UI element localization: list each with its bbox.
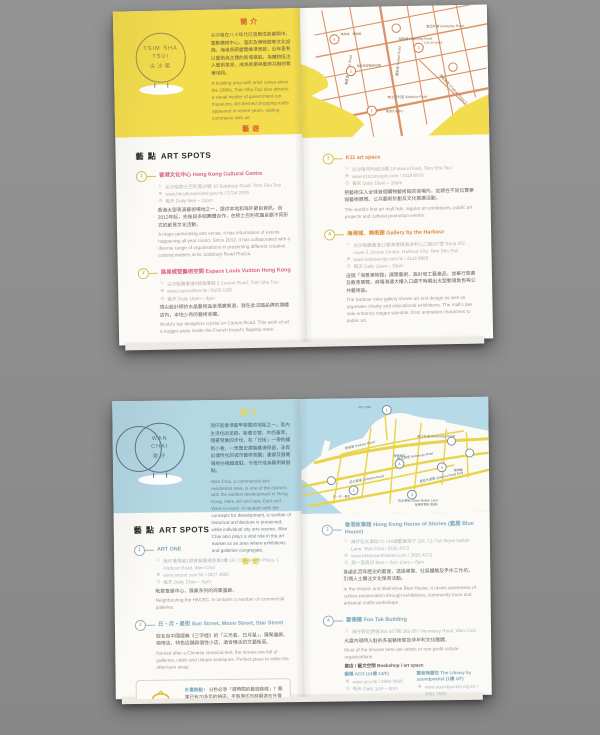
spot-desc-en: World's top designers crystal on Canton … xyxy=(139,318,293,335)
spot-desc-en: Neighbouring the HKCEC, it contains a nu… xyxy=(135,596,290,612)
spot-hours: 每天 Daily 9am – 11pm xyxy=(165,197,212,205)
web-icon: ⊕ xyxy=(155,572,161,579)
badge-legs xyxy=(136,472,184,478)
number-connector xyxy=(147,176,156,177)
clock-icon: ◷ xyxy=(344,180,350,187)
spot-address: 灣仔港灣道1號會展廣場商場1樓 1/F, Convention Plaza, 1… xyxy=(163,556,289,572)
clock-icon: ◷ xyxy=(157,198,163,205)
spot-title: 香港故事館 Hong Kong House of Stories (藍屋 Blu… xyxy=(345,521,477,537)
tenant: 聲音掏腰包 The Library by soundpocket (1樓 1/F… xyxy=(417,670,480,697)
marker-label: 路易威登藝術空間 xyxy=(357,62,381,67)
section-stamp: 藝遊 xyxy=(212,124,292,136)
marker-label: 香港故事館 (藍屋) xyxy=(415,501,438,506)
svg-text:1: 1 xyxy=(386,408,388,412)
art-spot: 1 ART ONE ⚐灣仔港灣道1號會展廣場商場1樓 1/F, Conventi… xyxy=(134,543,290,611)
number-connector xyxy=(149,273,158,274)
spot-title: K11 art space xyxy=(346,154,381,162)
tsim-sha-tsui-map: 廣東道 Canton Road 彌敦道 Nathan Road 海防道 Haip… xyxy=(300,4,489,138)
street-label: 金巴利道 Kimberley Road xyxy=(426,23,464,29)
spot-address: 尖沙咀廣東道17號海港城海洋中心二階207室 Shop 207, Level 2… xyxy=(353,239,478,256)
svg-text:2: 2 xyxy=(353,489,355,493)
district-intro: 簡介 尖沙咀在八十年代已發展成商業鬧市，雲集購物中心、酒店及博物館等文化設施。海… xyxy=(210,16,292,139)
district-badge: WAN CHAI 灣仔 xyxy=(126,422,193,485)
wan-chai-map: 告士打道 Gloucester Road 港灣道 Harbour Road 軒尼… xyxy=(300,397,489,514)
marker-label: 香港文化中心 xyxy=(386,108,404,113)
spot-hours: 每天 Daily 10am – 9pm xyxy=(167,294,215,302)
marker-label: 豪華餅店 xyxy=(394,453,406,458)
art-spot: 3 K11 art space ⚐尖沙咀河內道18號 18 Hanoi Road… xyxy=(323,151,478,221)
spot-number: 4 xyxy=(324,229,335,240)
section-heading: 藝 點ART SPOTS xyxy=(134,523,289,536)
spot-address: 灣仔石水渠街72-74A號藍屋地下 G/F, 72-74A Stone Null… xyxy=(351,537,477,553)
number-connector xyxy=(335,234,344,235)
location-icon: ⚐ xyxy=(344,628,350,635)
intro-text-en: A bustling area with artist zones since … xyxy=(211,79,292,122)
intro-text-zh: 尖沙咀在八十年代已發展成商業鬧市，雲集購物中心、酒店及博物館等文化設施。海濱長廊… xyxy=(210,30,291,77)
spot-hours: 每天 Daily 10am – 8pm xyxy=(163,578,211,586)
spot-title: ART ONE xyxy=(157,546,181,553)
spot-number: 1 xyxy=(136,171,147,182)
spot-desc-zh: 頂尖設計師的水晶藝術品坐落廣東道，就在此法國品牌的旗艦店內，本地少有的藝術收藏。 xyxy=(138,302,292,320)
district-badge-circle: WAN CHAI 灣仔 xyxy=(134,422,185,473)
district-badge: TSIM SHA TSUI 尖沙咀 xyxy=(127,32,194,95)
svg-text:3: 3 xyxy=(411,493,413,497)
spot-title: 富德樓 Foo Tak Building xyxy=(346,617,407,625)
badge-legs xyxy=(137,82,185,88)
spot-desc-en: Most of the tenants here are artists or … xyxy=(323,645,478,661)
snack-bun-icon xyxy=(150,687,172,700)
web-icon: ⊕ xyxy=(417,684,423,697)
spot-desc-zh: 取名自中國經典《三字經》的「三光者，日月星」，匯聚畫廊、咖啡店、特色店舖與個性小… xyxy=(135,632,290,649)
wan-chai-spread: WAN CHAI 灣仔 簡介 灣仔是香港最早發展的地區之一，區內生活化的足跡，新… xyxy=(112,397,492,700)
map-marker xyxy=(327,477,335,485)
art-spot: 2 日・月・星街 Sun Street, Moon Street, Star S… xyxy=(135,619,291,671)
spot-number: 1 xyxy=(134,545,145,556)
small-bites-label: 小吃世界 SMALL BITES xyxy=(143,686,180,699)
district-name-zh: 灣仔 xyxy=(136,452,184,461)
section-stamp: 簡介 xyxy=(210,407,290,418)
district-badge-circle: TSIM SHA TSUI 尖沙咀 xyxy=(135,32,186,83)
tenant-name: 藝鵠 ACO (14樓 14/F) xyxy=(345,671,407,678)
number-connector xyxy=(146,625,155,626)
marker-label: 日・月・星街 xyxy=(333,493,351,498)
spot-number: 3 xyxy=(322,524,333,535)
art-spots-continued: 3 K11 art space ⚐尖沙咀河內道18號 18 Hanoi Road… xyxy=(323,151,480,336)
svg-text:4: 4 xyxy=(333,38,335,42)
spot-desc-zh: 香港大型表演藝術場地之一，提供本地和海外節目資訊。自2012年起，先後與多個團體… xyxy=(137,205,291,230)
spot-hours: 周一至周日 Mon – Sun 11am – 6pm xyxy=(351,559,424,567)
spot-desc-en: In the historic and distinctive Blue Hou… xyxy=(322,584,477,607)
clock-icon: ◷ xyxy=(159,295,165,302)
photo-of-brochures: TSIM SHA TSUI 尖沙咀 簡介 尖沙咀在八十年代已發展成商業鬧市，雲集… xyxy=(0,0,600,735)
tsim-sha-tsui-left-page: TSIM SHA TSUI 尖沙咀 簡介 尖沙咀在八十年代已發展成商業鬧市，雲集… xyxy=(113,8,306,346)
district-name-zh: 尖沙咀 xyxy=(137,62,185,71)
spot-title: 日・月・星街 Sun Street, Moon Street, Star Str… xyxy=(158,621,283,630)
spot-desc-zh: 把藝術注入全球首個購物藝術館的商場內，定期在不同位置舉辦藝術展覽、公共藝術計劃及… xyxy=(323,187,477,205)
web-icon: ⊕ xyxy=(343,553,349,560)
art-spot: 2 路易威登藝術空間 Espace Louis Vuitton Hong Kon… xyxy=(138,266,293,336)
svg-text:4: 4 xyxy=(441,466,443,470)
section-stamp: 簡介 xyxy=(210,16,290,28)
clock-icon: ◷ xyxy=(346,263,352,270)
svg-text:3: 3 xyxy=(417,46,419,50)
spot-hours: 每天 Daily 11am – 10pm xyxy=(354,262,404,270)
tenant: 藝鵠 ACO (14樓 14/F) ⊕www.aco.hk / 2893 480… xyxy=(345,671,408,697)
wan-chai-right-page: 告士打道 Gloucester Road 港灣道 Harbour Road 軒尼… xyxy=(300,397,492,697)
marker-label: 海港城．美術廊 xyxy=(340,31,361,36)
map-marker xyxy=(466,449,474,457)
art-spot: 4 富德樓 Foo Tak Building ⚐灣仔軒尼詩道365-367號 3… xyxy=(323,614,479,697)
svg-text:2: 2 xyxy=(350,69,352,73)
number-connector xyxy=(334,620,343,621)
spot-desc-en: A major performing arts venue, it has in… xyxy=(137,228,292,259)
map-marker xyxy=(449,63,458,72)
spot-desc-zh: 身處此百年歷史的藍屋，透過導賞、社區體驗及手作工作坊，引領人士關注文化保育活動。 xyxy=(322,568,477,585)
tsim-sha-tsui-spread: TSIM SHA TSUI 尖沙咀 簡介 尖沙咀在八十年代已發展成商業鬧市，雲集… xyxy=(113,4,493,345)
district-header: TSIM SHA TSUI 尖沙咀 簡介 尖沙咀在八十年代已發展成商業鬧市，雲集… xyxy=(113,8,302,138)
number-connector xyxy=(334,158,343,159)
tsim-sha-tsui-right-page: 廣東道 Canton Road 彌敦道 Nathan Road 海防道 Haip… xyxy=(300,4,493,342)
clock-icon: ◷ xyxy=(343,560,349,567)
small-bites-box: 小吃世界 SMALL BITES 外賣熱點！ 分秒必爭「趕時間的藝遊路線」？開業… xyxy=(136,678,292,699)
web-icon: ⊕ xyxy=(345,678,351,685)
location-icon: ⚐ xyxy=(155,558,161,572)
location-icon: ⚐ xyxy=(343,538,349,552)
clock-icon: ◷ xyxy=(345,686,351,693)
spot-desc-en: The harbour view gallery shows art and d… xyxy=(325,294,480,325)
section-heading: 藝 點ART SPOTS xyxy=(136,148,290,162)
art-spots-section: 藝 點ART SPOTS 1 ART ONE ⚐灣仔港灣道1號會展廣場商場1樓 … xyxy=(134,523,291,693)
tenant-name: 聲音掏腰包 The Library by soundpocket (1樓 1/F… xyxy=(417,670,479,683)
spot-hours: 每天 Daily 10am – 10pm xyxy=(352,179,402,187)
art-spots-section: 藝 點ART SPOTS 1 香港文化中心 Hong Kong Cultural… xyxy=(136,148,294,339)
clock-icon: ◷ xyxy=(155,579,161,586)
spot-address: 灣仔軒尼詩道365-367號 365-367 Hennessy Road, Wa… xyxy=(352,627,476,636)
intro-text-zh: 灣仔是香港最早發展的地區之一，區內生活化的足跡，新舊交替、中西薈萃。隨著發展的步… xyxy=(210,421,291,475)
tenant-category-label: 書店 / 藝文空間 Bookshop / art space xyxy=(323,662,478,670)
marker-label: K11 art space xyxy=(424,40,443,44)
marker-label: 富德樓 xyxy=(454,467,463,472)
spot-title: 路易威登藝術空間 Espace Louis Vuitton Hong Kong xyxy=(161,268,291,278)
spot-desc-en: The world's first art mall hub, regular … xyxy=(324,203,478,220)
spot-number: 4 xyxy=(323,616,334,627)
number-connector xyxy=(333,529,342,530)
marker-label: ART ONE xyxy=(358,405,371,409)
spot-title: 海港城．美術廊 Gallery by the Harbour xyxy=(347,229,444,238)
district-header: WAN CHAI 灣仔 簡介 灣仔是香港最早發展的地區之一，區內生活化的足跡，新… xyxy=(112,399,301,513)
tenant-list: 藝鵠 ACO (14樓 14/F) ⊕www.aco.hk / 2893 480… xyxy=(324,670,479,697)
art-spot: 3 香港故事館 Hong Kong House of Stories (藍屋 B… xyxy=(322,521,478,607)
spot-desc-zh: 這個「海景美術館」展覽藝術、設計和工藝產品，並舉行慈善及教育展覽。商場海運大樓入… xyxy=(325,270,479,295)
location-icon: ⚐ xyxy=(345,242,351,256)
district-name-en: CHAI xyxy=(136,443,184,452)
map-marker xyxy=(392,24,401,33)
district-name-en: TSUI xyxy=(137,53,185,62)
svg-text:1: 1 xyxy=(371,109,373,113)
spot-desc-en: Named after a Chinese classical text, th… xyxy=(135,648,290,671)
spot-number: 2 xyxy=(135,620,146,631)
street-label: 梳士巴利道 Salisbury Road xyxy=(387,94,427,100)
spot-number: 3 xyxy=(323,153,334,164)
wan-chai-left-page: WAN CHAI 灣仔 簡介 灣仔是香港最早發展的地區之一，區內生活化的足跡，新… xyxy=(112,399,304,699)
art-spot: 1 香港文化中心 Hong Kong Cultural Centre ⚐尖沙咀梳… xyxy=(136,168,292,259)
spot-title: 香港文化中心 Hong Kong Cultural Centre xyxy=(159,171,262,180)
small-bites-text: 外賣熱點！ 分秒必爭「趕時間的藝遊路線」？開業已有70多年的餅店，手製港式包餅最… xyxy=(185,685,285,699)
art-spots-continued: 3 香港故事館 Hong Kong House of Stories (藍屋 B… xyxy=(322,521,479,691)
spot-number: 2 xyxy=(138,268,149,279)
number-connector xyxy=(145,550,154,551)
map-marker xyxy=(447,437,455,445)
art-spot: 4 海港城．美術廊 Gallery by the Harbour ⚐尖沙咀廣東道… xyxy=(324,226,480,324)
